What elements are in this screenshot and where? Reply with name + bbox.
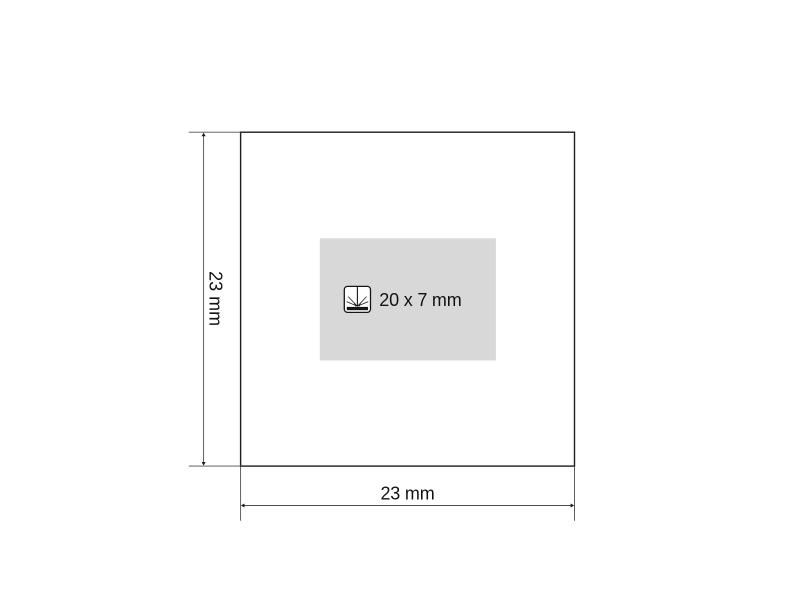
svg-text:23 mm: 23 mm (205, 271, 225, 326)
svg-text:23 mm: 23 mm (380, 483, 434, 503)
svg-text:20 x 7 mm: 20 x 7 mm (379, 290, 461, 310)
